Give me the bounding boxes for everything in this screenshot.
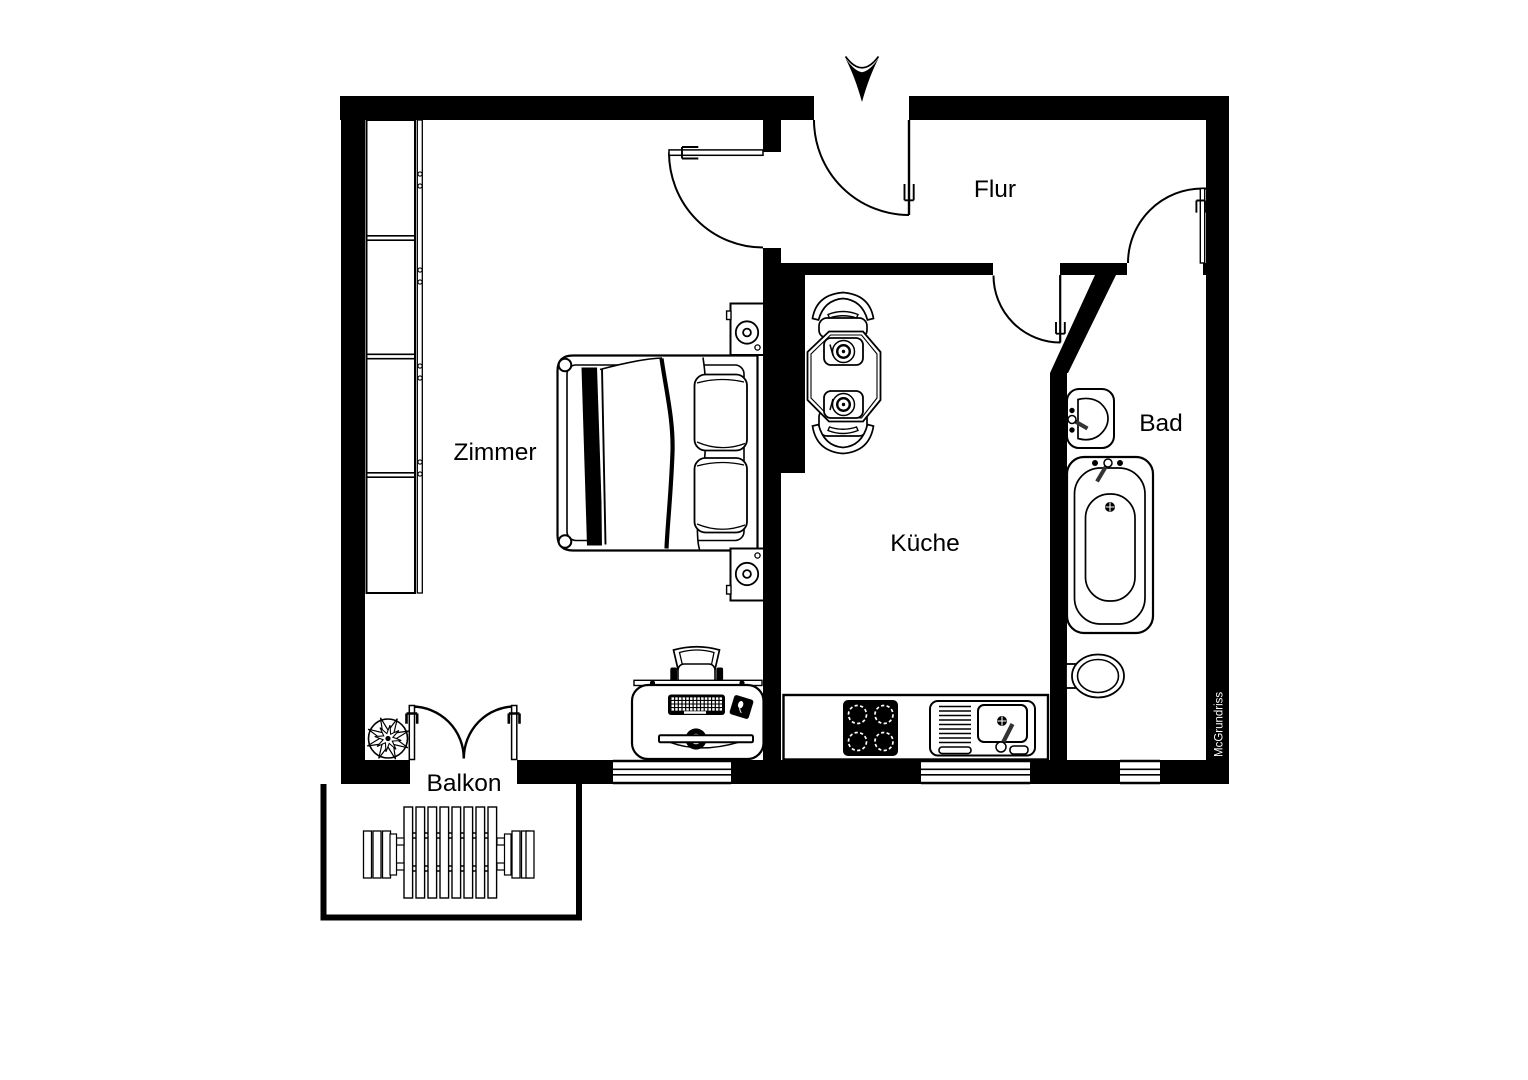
svg-text:Flur: Flur <box>974 176 1016 203</box>
svg-text:Zimmer: Zimmer <box>453 439 536 466</box>
svg-text:Balkon: Balkon <box>427 770 502 797</box>
svg-text:McGrundriss: McGrundriss <box>1214 692 1226 757</box>
svg-text:Küche: Küche <box>890 530 959 557</box>
svg-text:Bad: Bad <box>1139 410 1183 437</box>
